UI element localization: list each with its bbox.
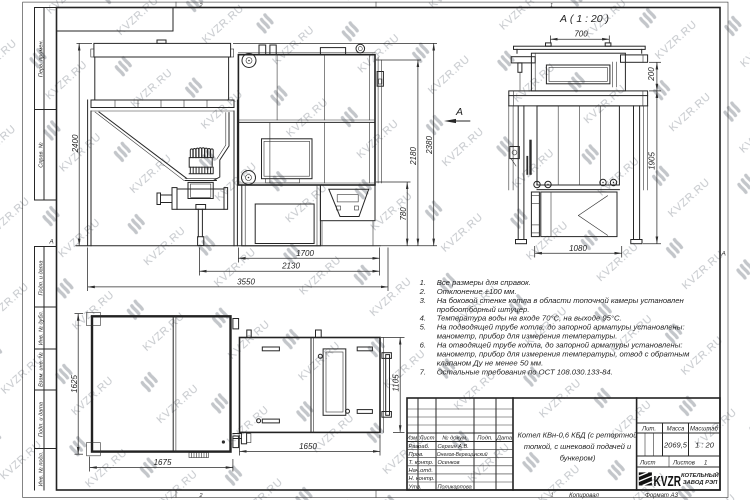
svg-text:Листов: Листов	[672, 461, 695, 467]
svg-text:2: 2	[198, 3, 202, 9]
svg-text:Справ. №: Справ. №	[39, 142, 45, 167]
svg-text:манометр, прибор для измерения: манометр, прибор для измерения температу…	[437, 332, 618, 341]
svg-text:2380: 2380	[425, 136, 434, 155]
svg-text:7.: 7.	[420, 367, 426, 376]
svg-text:1675: 1675	[154, 458, 172, 467]
svg-text:Температура воды на входе 70°С: Температура воды на входе 70°С, на выход…	[437, 314, 622, 323]
svg-text:Лист: Лист	[419, 435, 435, 441]
svg-text:Формат А3: Формат А3	[645, 493, 678, 499]
svg-text:Перв. примен.: Перв. примен.	[39, 40, 45, 77]
svg-text:Лист: Лист	[639, 461, 655, 467]
svg-text:Утв.: Утв.	[408, 484, 422, 490]
svg-text:пробоотборный штуцер.: пробоотборный штуцер.	[437, 305, 530, 314]
svg-text:1650: 1650	[299, 442, 317, 451]
svg-text:На подводящей трубе котла, до: На подводящей трубе котла, до запорной а…	[437, 323, 685, 332]
svg-text:Дата: Дата	[496, 435, 513, 441]
svg-text:Остальные требования по ОСТ 10: Остальные требования по ОСТ 108.030.133-…	[437, 367, 613, 376]
svg-text:780: 780	[399, 207, 408, 221]
svg-text:Т. контр.: Т. контр.	[409, 460, 434, 466]
svg-text:А ( 1 : 20 ): А ( 1 : 20 )	[559, 13, 609, 25]
svg-text:Разраб.: Разраб.	[409, 444, 430, 450]
svg-text:На боковой стенке котла в обла: На боковой стенке котла в области топочн…	[437, 296, 685, 305]
svg-text:топкой, с шнековой подачей и: топкой, с шнековой подачей и	[524, 442, 632, 451]
svg-text:Осенков: Осенков	[438, 460, 460, 466]
svg-text:Масштаб: Масштаб	[690, 427, 719, 433]
svg-text:3.: 3.	[420, 296, 426, 305]
svg-text:Сергин А.В.: Сергин А.В.	[438, 444, 469, 450]
svg-text:Отклонение ±100 мм.: Отклонение ±100 мм.	[437, 287, 517, 296]
svg-text:ЗАВОД РЭП: ЗАВОД РЭП	[683, 480, 718, 486]
svg-text:1.: 1.	[420, 278, 426, 287]
svg-text:1: 1	[704, 461, 707, 467]
svg-text:5.: 5.	[420, 323, 426, 332]
svg-text:манометр, прибор для измерения: манометр, прибор для измерения температу…	[437, 349, 690, 358]
svg-text:2180: 2180	[409, 147, 418, 166]
svg-text:1: 1	[550, 493, 553, 499]
svg-text:4.: 4.	[420, 314, 426, 323]
svg-text:Нач.отд.: Нач.отд.	[409, 468, 433, 474]
svg-text:1 : 20: 1 : 20	[695, 441, 715, 450]
svg-text:А: А	[48, 238, 53, 245]
svg-text:6.: 6.	[420, 341, 426, 350]
svg-text:2400: 2400	[71, 134, 80, 153]
svg-text:Копировал: Копировал	[569, 493, 599, 499]
svg-text:1700: 1700	[296, 249, 314, 258]
svg-text:Подп. и дата: Подп. и дата	[39, 402, 45, 437]
svg-text:Лит.: Лит.	[641, 427, 656, 433]
svg-text:1905: 1905	[648, 152, 657, 170]
svg-text:2.: 2.	[419, 287, 426, 296]
svg-text:Котел КВн-0,6 КБД (с ретортной: Котел КВн-0,6 КБД (с ретортной	[518, 431, 639, 440]
svg-text:№ докум.: № докум.	[442, 435, 468, 441]
svg-text:700: 700	[574, 30, 588, 39]
svg-text:Онегов-Верещинский: Онегов-Верещинский	[437, 451, 488, 458]
svg-text:КОТЕЛЬНЫЙ: КОТЕЛЬНЫЙ	[681, 471, 720, 479]
svg-text:KVZR: KVZR	[654, 474, 682, 490]
svg-text:Подп. и дата: Подп. и дата	[39, 260, 45, 295]
svg-text:клапаном Ду не менее 50 мм.: клапаном Ду не менее 50 мм.	[437, 358, 544, 367]
svg-text:2069,5: 2069,5	[663, 441, 688, 450]
svg-text:Масса: Масса	[667, 427, 685, 433]
svg-text:200: 200	[647, 67, 656, 82]
svg-text:Инв. № дубл.: Инв. № дубл.	[39, 311, 45, 345]
svg-text:2: 2	[198, 493, 202, 499]
svg-text:1625: 1625	[70, 375, 79, 393]
svg-text:Все размеры для справок.: Все размеры для справок.	[437, 278, 531, 287]
svg-text:Поликарпова: Поликарпова	[438, 484, 472, 490]
svg-text:Взам. инв. №: Взам. инв. №	[39, 352, 45, 387]
svg-text:3550: 3550	[237, 277, 255, 286]
svg-text:Изм.: Изм.	[406, 435, 418, 441]
svg-text:Инв. № подл.: Инв. № подл.	[39, 452, 45, 487]
svg-text:бункером): бункером)	[560, 454, 596, 463]
svg-text:На отводящей трубе котла, до з: На отводящей трубе котла, до запорной ар…	[437, 341, 683, 350]
svg-text:А: А	[721, 251, 726, 258]
svg-text:Подп.: Подп.	[477, 435, 492, 441]
svg-text:2130: 2130	[281, 262, 300, 271]
svg-text:1: 1	[550, 3, 553, 9]
svg-text:А: А	[455, 106, 463, 118]
svg-text:1080: 1080	[569, 244, 587, 253]
svg-text:Н. контр.: Н. контр.	[409, 476, 435, 482]
svg-text:1105: 1105	[392, 374, 401, 392]
svg-text:Пров.: Пров.	[409, 452, 424, 458]
